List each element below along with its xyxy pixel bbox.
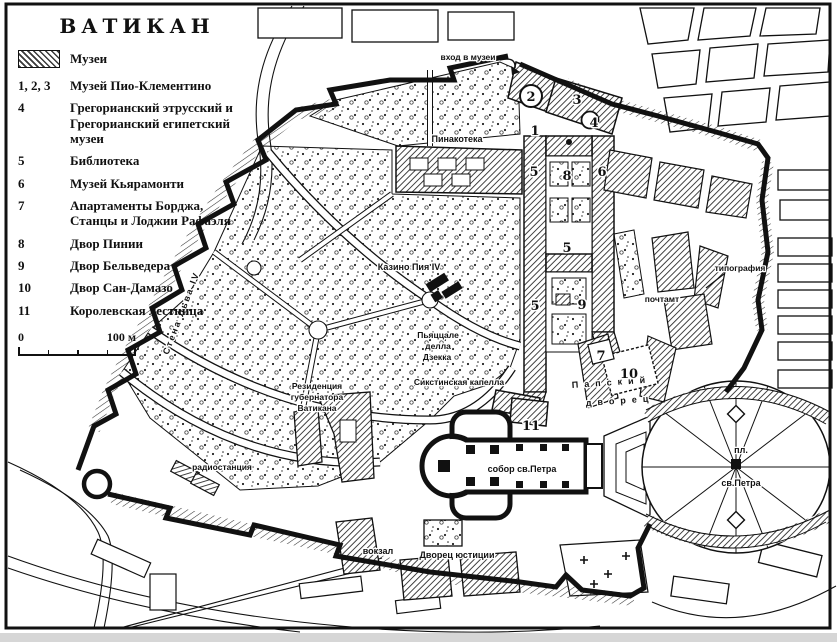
- legend-key: 8: [18, 236, 60, 251]
- legend: ВАТИКАН Музеи 1, 2, 3 Музей Пио-Клементи…: [18, 12, 256, 356]
- marker-2: 2: [526, 90, 535, 105]
- marker-7: 7: [596, 349, 605, 364]
- legend-label: Апартаменты Борджа, Станцы и Лоджии Рафа…: [70, 198, 242, 229]
- marker-6: 6: [597, 165, 606, 180]
- legend-label: Королевская лестница: [70, 303, 203, 318]
- legend-key: 6: [18, 176, 60, 191]
- obelisk: [731, 459, 741, 469]
- legend-key: 9: [18, 258, 60, 273]
- legend-item: 5 Библиотека: [18, 153, 256, 168]
- legend-label: Двор Пинии: [70, 236, 143, 251]
- label-casino-pia-iv: Казино Пия IV: [378, 262, 440, 272]
- label-typography: типография: [715, 263, 766, 273]
- marker-1: 1: [530, 124, 539, 139]
- label-radio-station: радиостанция: [192, 462, 252, 472]
- label-square-line2: св.Петра: [721, 478, 761, 488]
- scale-hundred: 100 м: [107, 330, 136, 345]
- legend-key: 4: [18, 100, 60, 146]
- scale-bar: 0 100 м: [18, 330, 136, 356]
- label-station: вокзал: [363, 546, 394, 556]
- legend-item: 6 Музей Кьярамонти: [18, 176, 256, 191]
- label-museums-entrance: вход в музеи: [440, 52, 495, 62]
- scale-zero: 0: [18, 330, 24, 345]
- legend-label: Двор Сан-Дамазо: [70, 280, 173, 295]
- legend-item: 7 Апартаменты Борджа, Станцы и Лоджии Ра…: [18, 198, 256, 229]
- label-st-peters-cathedral: собор св.Петра: [488, 464, 558, 474]
- legend-item: 11 Королевская лестница: [18, 303, 256, 318]
- map-title: ВАТИКАН: [18, 14, 256, 38]
- marker-8: 8: [562, 169, 571, 184]
- legend-key: 11: [18, 303, 60, 318]
- label-residence-line1: Резиденция: [292, 381, 342, 391]
- legend-item: 9 Двор Бельведера: [18, 258, 256, 273]
- legend-item-museums: Музеи: [18, 50, 256, 68]
- legend-item: 4 Грегорианский этрусский и Грегориански…: [18, 100, 256, 146]
- label-post-office: почтамт: [645, 294, 679, 304]
- label-square-line1: пл.: [734, 445, 748, 455]
- label-piazzale-line3: Дзекка: [423, 352, 452, 362]
- label-piazzale-line2: делла: [425, 341, 451, 351]
- label-piazzale-line1: Пьяццале: [417, 330, 459, 340]
- legend-key: 5: [18, 153, 60, 168]
- label-sistine-chapel: Сикстинская капелла: [414, 377, 504, 387]
- legend-label: Музей Кьярамонти: [70, 176, 184, 191]
- legend-key: 10: [18, 280, 60, 295]
- marker-5b: 5: [562, 241, 571, 256]
- label-residence-line2: губернатора: [291, 392, 344, 402]
- legend-swatch-label: Музеи: [70, 51, 107, 66]
- marker-11: 11: [522, 419, 540, 434]
- label-pinacoteca: Пинакотека: [431, 134, 483, 144]
- library-transverse: [546, 254, 592, 272]
- label-residence-line3: Ватикана: [297, 403, 336, 413]
- st-peters-square: [642, 381, 830, 553]
- justice-buildings: [400, 520, 520, 600]
- nicchione: [566, 139, 572, 145]
- legend-label: Грегорианский этрусский и Грегорианский …: [70, 100, 242, 146]
- legend-item: 1, 2, 3 Музей Пио-Клементино: [18, 78, 256, 93]
- museums-hatch-swatch: [18, 50, 60, 68]
- legend-label: Библиотека: [70, 153, 139, 168]
- marker-5c: 5: [530, 299, 539, 314]
- marker-10: 10: [620, 367, 638, 382]
- marker-9: 9: [577, 298, 586, 313]
- legend-item: 8 Двор Пинии: [18, 236, 256, 251]
- legend-label: Музей Пио-Клементино: [70, 78, 211, 93]
- legend-label: Двор Бельведера: [70, 258, 170, 273]
- page-margin-strip: [0, 633, 837, 642]
- legend-key: 7: [18, 198, 60, 229]
- marker-4: 4: [589, 116, 598, 131]
- legend-item: 10 Двор Сан-Дамазо: [18, 280, 256, 295]
- marker-3: 3: [572, 93, 581, 108]
- marker-5a: 5: [529, 165, 538, 180]
- label-palace-of-justice: Дворец юстиции: [420, 550, 495, 560]
- vatican-map-page: { "legend": { "title": "ВАТИКАН", "swatc…: [0, 0, 837, 642]
- wall-bastion-tower: [84, 471, 110, 497]
- legend-key: 1, 2, 3: [18, 78, 60, 93]
- scale-line: [18, 347, 136, 356]
